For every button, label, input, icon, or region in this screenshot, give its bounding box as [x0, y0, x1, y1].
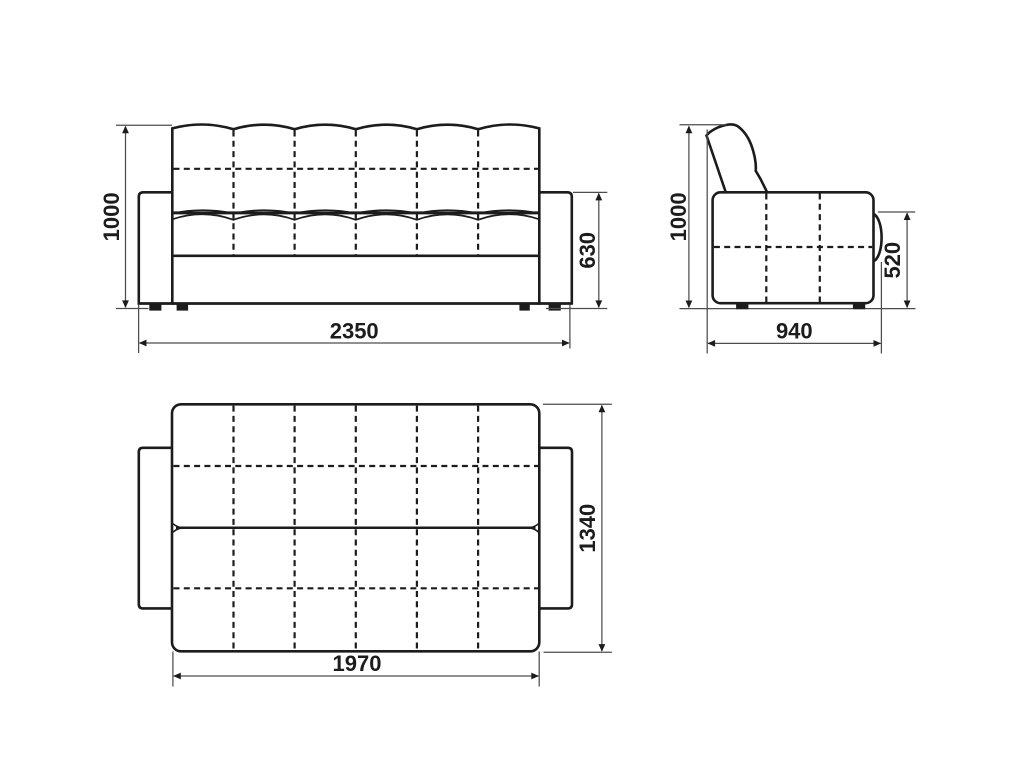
svg-text:1000: 1000 — [99, 192, 124, 241]
svg-text:940: 940 — [776, 318, 813, 343]
svg-text:1340: 1340 — [575, 504, 600, 553]
svg-text:630: 630 — [575, 232, 600, 269]
svg-text:520: 520 — [880, 242, 905, 279]
svg-text:1970: 1970 — [333, 651, 382, 676]
svg-text:2350: 2350 — [330, 319, 379, 344]
svg-text:1000: 1000 — [666, 192, 691, 241]
